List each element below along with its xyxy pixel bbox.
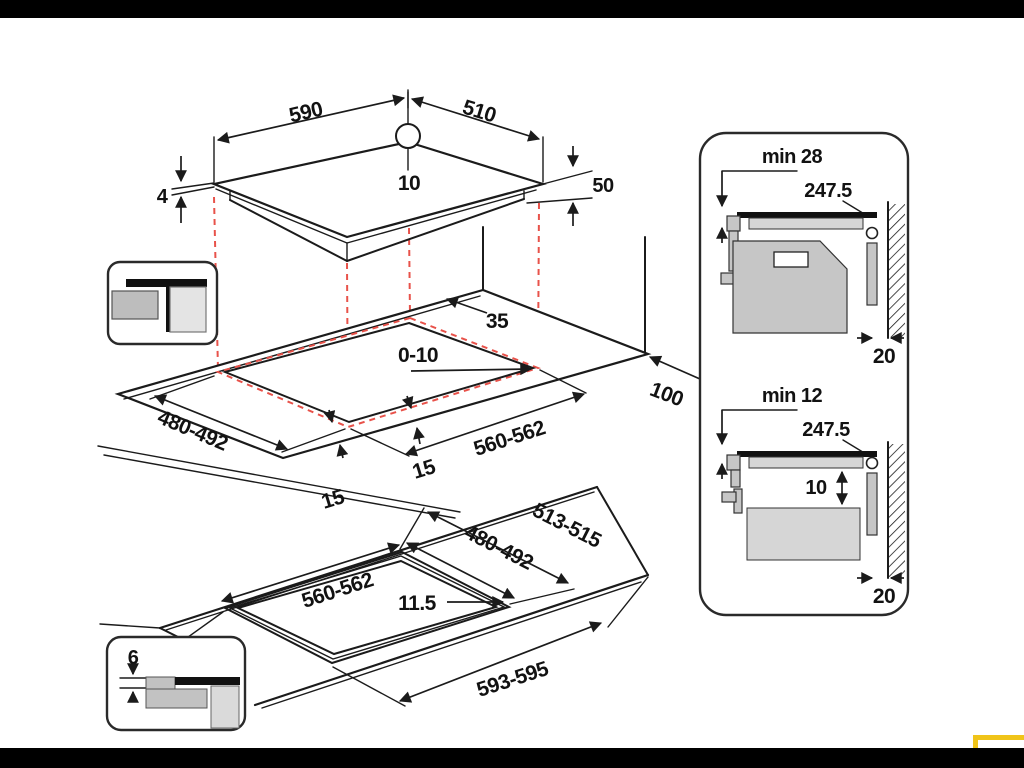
dim-drawer-gap: 10 — [805, 477, 827, 499]
dim-rear-offset: 10 — [398, 172, 420, 195]
screenshot-stage: 35 0-10 100 480-492 560-562 15 15 — [0, 0, 1024, 768]
dim-edge-gap: 0-10 — [398, 344, 438, 367]
wall-hatching-bottom — [889, 444, 905, 577]
dim-front-right: 15 — [410, 455, 439, 484]
top-letterbox-bar — [0, 0, 1024, 18]
dim-wall-gap-bottom: 20 — [873, 585, 895, 608]
installation-diagram: 35 0-10 100 480-492 560-562 15 15 — [0, 0, 1024, 768]
bottom-letterbox-bar — [0, 748, 1024, 768]
dim-flush-step: 6 — [128, 647, 139, 669]
dim-back-clearance: 35 — [486, 310, 509, 333]
dim-min-clearance-top: min 28 — [762, 146, 823, 168]
dim-flush-outer-depth: 513-515 — [529, 499, 606, 553]
dim-flush-outer-width: 593-595 — [474, 657, 552, 702]
dim-glass-thickness: 4 — [157, 186, 169, 208]
rear-reference-circle — [396, 124, 420, 148]
dim-hob-depth: 510 — [460, 96, 499, 128]
dim-body-height: 50 — [592, 175, 614, 197]
dim-depth-bottom: 247.5 — [802, 419, 850, 441]
yellow-highlight-corner — [973, 735, 1024, 740]
oven-vent-slot — [774, 252, 808, 267]
hob-isometric-view: 590 510 10 4 50 — [157, 90, 614, 261]
dim-min-clearance-bottom: min 12 — [762, 385, 823, 407]
wall-hatching-top — [889, 204, 905, 337]
dim-rim-width: 11.5 — [398, 592, 437, 615]
yellow-highlight-corner-edge — [973, 735, 978, 748]
dim-wall-gap-top: 20 — [873, 345, 895, 368]
dim-cutout-width: 560-562 — [471, 416, 548, 461]
dim-hob-width: 590 — [287, 98, 325, 128]
surface-mount-icon — [108, 262, 217, 344]
dim-front-left: 15 — [319, 485, 348, 514]
flush-mount-icon: 6 — [107, 637, 245, 730]
dim-side-clearance: 100 — [647, 378, 687, 411]
dim-depth-top: 247.5 — [804, 180, 852, 202]
side-section-panel: min 28 247.5 20 min 12 — [700, 133, 908, 615]
